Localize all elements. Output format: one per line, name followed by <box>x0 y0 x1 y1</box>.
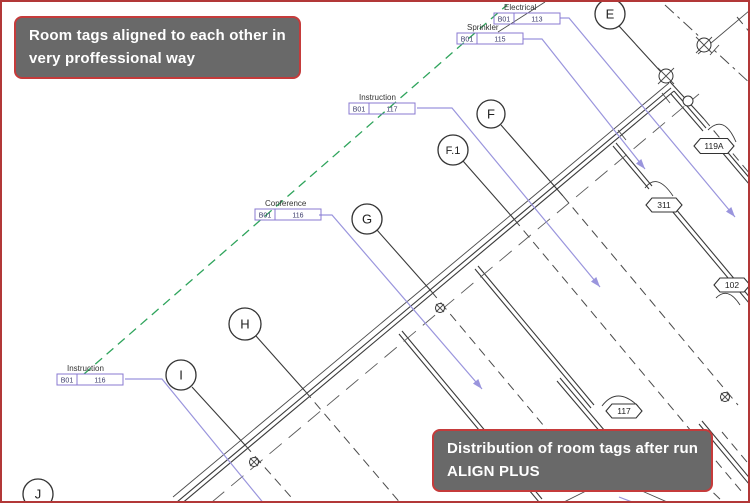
door-tag-102: 102 <box>714 278 750 292</box>
note-bottom-line2: ALIGN PLUS <box>447 461 698 484</box>
grid-bubble-H: H <box>229 308 261 340</box>
leader-arrow-icon <box>636 159 645 169</box>
room-tag-number: 113 <box>531 16 542 23</box>
room-tag-name: Instruction <box>359 93 396 102</box>
room-tag-level: B01 <box>498 16 511 23</box>
room-tag-sprinkler: SprinklerB01115 <box>457 23 523 44</box>
room-tag-instruction-top: InstructionB01117 <box>349 93 415 114</box>
door-tag-label: 311 <box>657 200 671 210</box>
room-tag-name: Conference <box>265 199 307 208</box>
room-tag-number: 115 <box>494 36 505 43</box>
note-top: Room tags aligned to each other in very … <box>14 16 301 79</box>
grid-bubble-label: E <box>606 7 615 22</box>
room-tag-number: 117 <box>386 106 397 113</box>
note-bottom-line1: Distribution of room tags after run <box>447 438 698 461</box>
cad-canvas: EFF.1GHIJElectricalB01113SprinklerB01115… <box>0 0 750 503</box>
room-tag-name: Sprinkler <box>467 23 499 32</box>
note-top-line1: Room tags aligned to each other in <box>29 25 286 48</box>
door-tag-119A: 119A <box>694 139 734 154</box>
grid-bubble-G: G <box>352 204 382 234</box>
door-swing-arcs <box>602 124 740 406</box>
room-tag-instruction-bottom: InstructionB01116 <box>57 364 123 385</box>
door-tag-117: 117 <box>606 404 642 418</box>
grid-bubble-label: I <box>179 368 183 383</box>
note-top-line2: very proffessional way <box>29 48 286 71</box>
note-bottom: Distribution of room tags after run ALIG… <box>432 429 713 492</box>
door-tag-label: 117 <box>617 406 631 416</box>
room-tag-electrical: ElectricalB01113 <box>494 3 560 24</box>
door-tag-label: 102 <box>725 280 739 290</box>
room-tag-level: B01 <box>61 377 74 384</box>
room-tag-number: 116 <box>94 377 105 384</box>
room-tag-level: B01 <box>353 106 366 113</box>
grid-bubble-label: H <box>240 317 249 332</box>
grid-bubble-F1: F.1 <box>438 135 468 165</box>
grid-bubble-F: F <box>477 100 505 128</box>
grid-bubble-J: J <box>23 479 53 503</box>
grid-bubble-label: F <box>487 107 495 122</box>
door-tag-311: 311 <box>646 198 682 212</box>
grid-bubble-I: I <box>166 360 196 390</box>
room-tag-level: B01 <box>259 212 272 219</box>
room-tag-level: B01 <box>461 36 474 43</box>
grid-bubble-label: G <box>362 212 372 227</box>
door-hinge-circle <box>683 96 693 106</box>
room-tag-number: 116 <box>292 212 303 219</box>
grid-bubble-E: E <box>595 2 625 29</box>
grid-bubble-label: F.1 <box>446 145 461 157</box>
door-tag-label: 119A <box>704 141 724 151</box>
grid-bubble-label: J <box>35 487 42 502</box>
room-tag-name: Electrical <box>504 3 537 12</box>
room-tag-name: Instruction <box>67 364 104 373</box>
room-tag-conference: ConferenceB01116 <box>255 199 321 220</box>
